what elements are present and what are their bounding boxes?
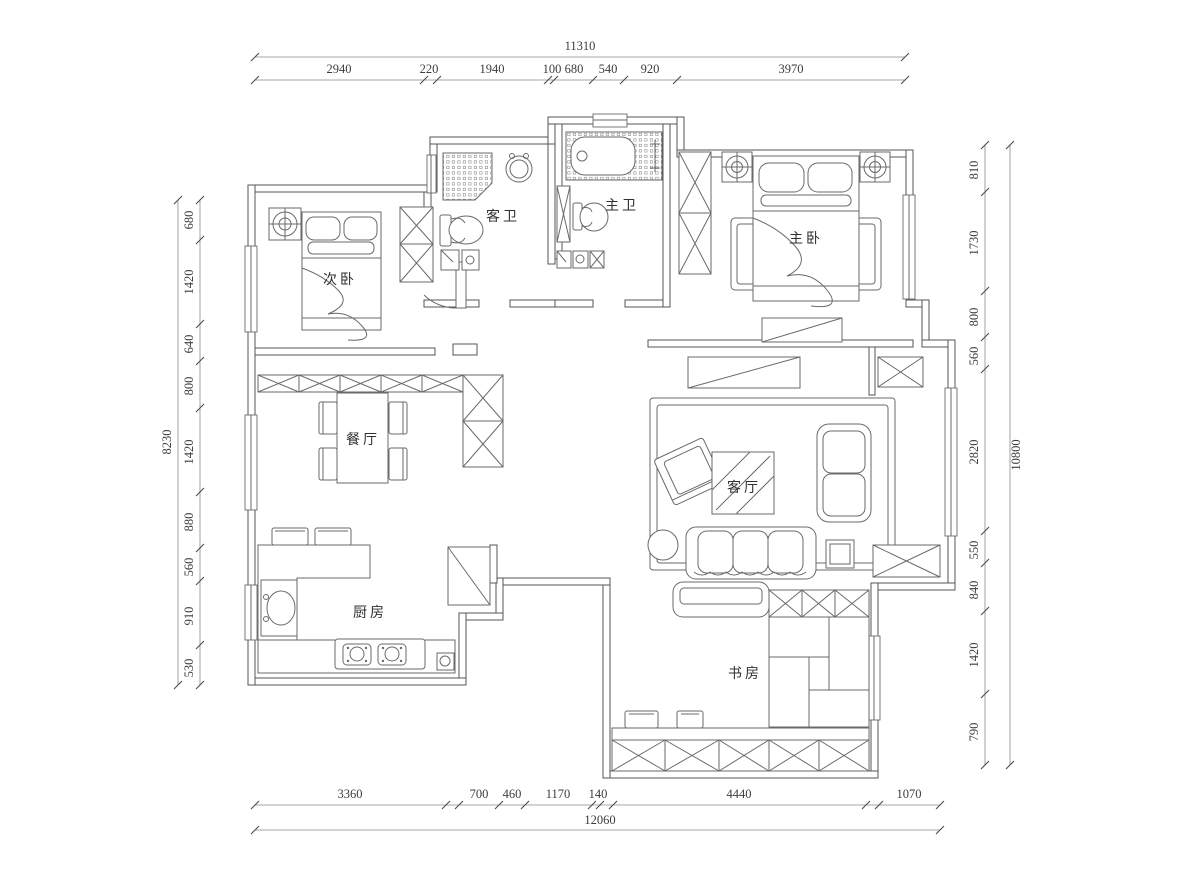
dim-left-3: 800 <box>182 377 196 396</box>
dim-top-7: 3970 <box>779 62 804 76</box>
room-label-master-bedroom: 主卧 <box>789 231 823 247</box>
dim-right-1: 1730 <box>967 231 981 256</box>
dim-left-4: 1420 <box>182 440 196 465</box>
room-label-dining: 餐厅 <box>346 432 380 448</box>
dim-top-4: 680 <box>565 62 584 76</box>
dim-left-5: 880 <box>182 513 196 532</box>
room-label-bedroom2: 次卧 <box>323 272 357 288</box>
dim-bottom-4: 140 <box>589 787 608 801</box>
floor-drain-icon <box>437 653 454 670</box>
dim-top-1: 220 <box>420 62 439 76</box>
window-master-bath <box>593 114 627 127</box>
dim-right-8: 790 <box>967 723 981 742</box>
dim-left-6: 560 <box>182 558 196 577</box>
console-table-icon <box>688 357 800 388</box>
toilet2-icon <box>573 203 608 231</box>
bathtub-icon <box>566 132 662 180</box>
dim-bottom-2: 460 <box>503 787 522 801</box>
sink-icon <box>506 154 532 183</box>
stove-icon <box>335 639 425 669</box>
window-living-bay <box>945 388 957 536</box>
master-wardrobe-icon <box>679 152 711 274</box>
study-cabinet-bottom-icon <box>612 740 869 771</box>
room-dining: 餐厅 <box>258 375 503 483</box>
dim-top-0: 2940 <box>327 62 352 76</box>
dimension-top: 11310 2940 220 1940 100 680 540 920 3970 <box>251 39 909 84</box>
room-master-bath: 主卫 <box>557 132 662 268</box>
room-master-bedroom: 主卧 <box>679 152 890 342</box>
dim-bottom-total: 12060 <box>584 813 615 827</box>
floor-plan-canvas: 11310 2940 220 1940 100 680 540 920 3970… <box>0 0 1200 889</box>
room-label-master-bath: 主卫 <box>605 198 639 214</box>
hall-cabinet-icon <box>878 357 923 387</box>
ceiling-lamp-icon <box>860 152 890 182</box>
dimension-bottom: 3360 700 460 1170 140 4440 1070 12060 <box>251 787 944 834</box>
dim-right-3: 560 <box>967 347 981 366</box>
dim-top-3: 100 <box>543 62 562 76</box>
dim-bottom-0: 3360 <box>338 787 363 801</box>
tall-cabinet-icon <box>463 375 503 467</box>
dim-right-4: 2820 <box>967 440 981 465</box>
dim-top-2: 1940 <box>480 62 505 76</box>
dim-right-0: 810 <box>967 161 981 180</box>
round-table-icon <box>648 530 678 560</box>
room-label-study: 书房 <box>728 666 762 682</box>
living-cabinet-icon <box>873 545 940 577</box>
hallway <box>688 357 923 388</box>
room-study: 书房 <box>612 582 869 771</box>
room-label-kitchen: 厨房 <box>353 605 387 621</box>
window-master-bedroom <box>903 195 915 299</box>
loveseat-icon <box>817 424 871 522</box>
dim-left-7: 910 <box>182 607 196 626</box>
dim-top-total: 11310 <box>565 39 596 53</box>
dimension-left: 8230 680 1420 640 800 1420 880 560 910 5… <box>160 196 204 689</box>
dim-right-5: 550 <box>967 541 981 560</box>
dim-right-7: 1420 <box>967 643 981 668</box>
ceiling-lamp-icon <box>269 208 301 240</box>
room-label-guest-bath: 客卫 <box>486 208 520 225</box>
window-dining <box>245 415 257 510</box>
room-kitchen: 厨房 <box>258 528 490 673</box>
bath-units-icon <box>557 251 604 268</box>
desk-icon <box>612 728 869 740</box>
dim-right-2: 800 <box>967 308 981 327</box>
dim-left-1: 1420 <box>182 270 196 295</box>
bench-icon <box>673 582 769 617</box>
dim-left-2: 640 <box>182 335 196 354</box>
sofa-icon <box>686 527 816 579</box>
room-living: 客厅 <box>648 398 940 579</box>
dimension-right: 810 1730 800 560 2820 550 840 1420 790 1… <box>967 141 1023 769</box>
room-bedroom2: 次卧 <box>269 207 466 340</box>
room-label-living: 客厅 <box>727 479 761 496</box>
window-study <box>868 636 880 720</box>
study-shelf-top-icon <box>769 590 869 617</box>
bath-cabinet-icon <box>557 186 570 242</box>
dim-right-total: 10800 <box>1009 439 1023 470</box>
dim-top-6: 920 <box>641 62 660 76</box>
dim-left-8: 530 <box>182 659 196 678</box>
floor-plan-drawing: 11310 2940 220 1940 100 680 540 920 3970… <box>0 0 1200 889</box>
bar-chair-icon <box>272 528 351 545</box>
desk-chair-icon <box>625 711 703 728</box>
dim-right-6: 840 <box>967 581 981 600</box>
dim-bottom-6: 1070 <box>897 787 922 801</box>
side-table-icon <box>826 540 854 568</box>
tatami-icon <box>769 617 869 727</box>
fridge-icon <box>448 547 490 605</box>
wardrobe2-icon <box>400 207 433 282</box>
dim-bottom-3: 1170 <box>546 787 571 801</box>
ceiling-lamp-icon <box>722 152 752 182</box>
toilet-icon <box>440 215 483 246</box>
dim-left-0: 680 <box>182 211 196 230</box>
dim-left-total: 8230 <box>160 430 174 455</box>
kitchen-sink-icon <box>261 580 297 636</box>
window-guest-bath <box>427 155 436 193</box>
dim-bottom-1: 700 <box>470 787 489 801</box>
room-guest-bath: 客卫 <box>440 153 532 270</box>
dim-bottom-5: 4440 <box>727 787 752 801</box>
dim-top-5: 540 <box>599 62 618 76</box>
shower-icon <box>443 153 492 200</box>
window-bedroom2 <box>245 246 257 332</box>
dining-cabinet-icon <box>258 375 463 392</box>
window-kitchen <box>245 585 257 640</box>
dresser-icon <box>762 318 842 342</box>
